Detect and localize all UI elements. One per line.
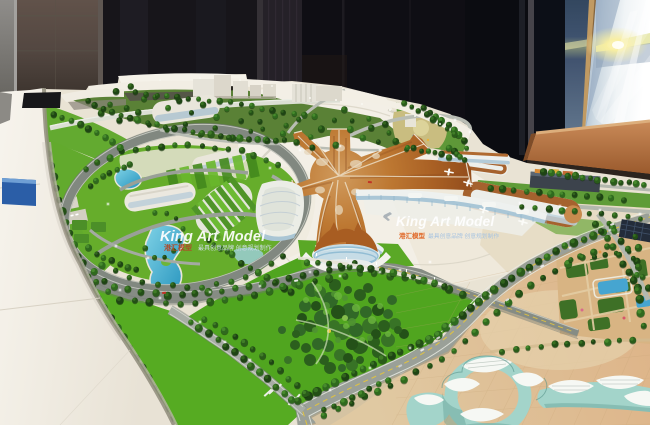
svg-text:港汇模型: 港汇模型 <box>164 243 192 252</box>
svg-text:最具创意品牌 创意规划制作: 最具创意品牌 创意规划制作 <box>428 232 499 240</box>
svg-text:最具创意品牌 创意规划制作: 最具创意品牌 创意规划制作 <box>198 244 272 252</box>
svg-text:King Art Model: King Art Model <box>396 214 494 229</box>
svg-text:港汇模型: 港汇模型 <box>399 231 426 240</box>
svg-text:King Art Model: King Art Model <box>160 229 266 245</box>
